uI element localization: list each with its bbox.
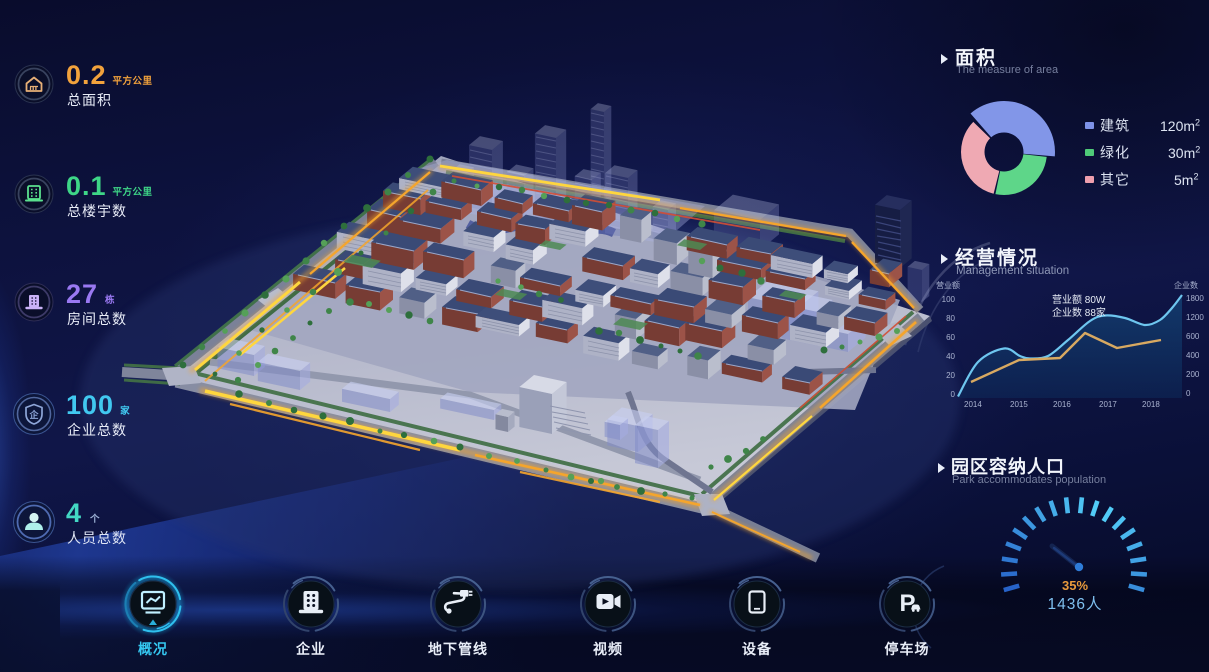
svg-text:P: P	[900, 590, 916, 617]
